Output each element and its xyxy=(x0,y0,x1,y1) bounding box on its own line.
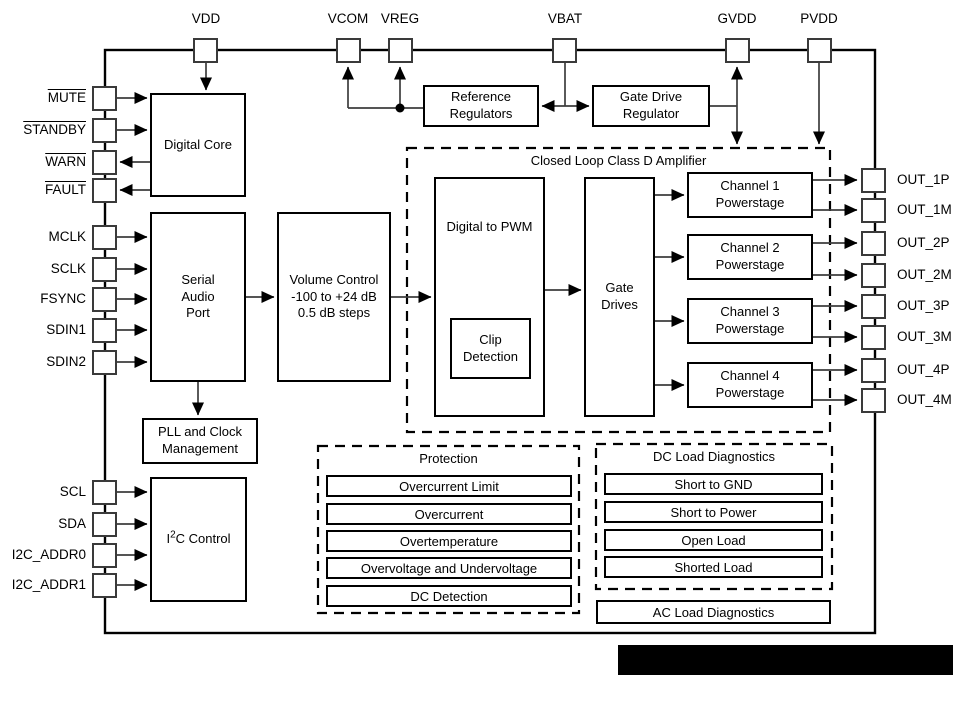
dc-load-item-shorted-load: Shorted Load xyxy=(604,556,823,578)
protection-item-overtemperature: Overtemperature xyxy=(326,530,572,552)
block-channel4-powerstage: Channel 4 Powerstage xyxy=(687,362,813,408)
block-digital-to-pwm: Digital to PWM xyxy=(434,177,545,417)
pin-i2c-addr0 xyxy=(92,543,117,568)
refreg-line1: Reference xyxy=(451,89,511,106)
pin-label-fsync: FSYNC xyxy=(0,291,86,307)
pin-sdin2 xyxy=(92,350,117,375)
refreg-line2: Regulators xyxy=(450,106,513,123)
block-gate-drives: Gate Drives xyxy=(584,177,655,417)
pin-label-out-2m: OUT_2M xyxy=(897,267,952,283)
sap-line3: Port xyxy=(186,305,210,322)
pin-out-3m xyxy=(861,325,886,350)
sap-line2: Audio xyxy=(181,289,214,306)
pin-gvdd xyxy=(725,38,750,63)
pll-line1: PLL and Clock xyxy=(158,424,242,441)
block-digital-core: Digital Core xyxy=(150,93,246,197)
volume-line3: 0.5 dB steps xyxy=(298,305,370,322)
ch3-line1: Channel 3 xyxy=(720,304,779,321)
pin-label-out-4m: OUT_4M xyxy=(897,392,952,408)
pin-label-scl: SCL xyxy=(0,484,86,500)
block-channel1-powerstage: Channel 1 Powerstage xyxy=(687,172,813,218)
i2c-control-label: I2C Control xyxy=(166,531,230,548)
pin-mclk xyxy=(92,225,117,250)
protection-item-overcurrent: Overcurrent xyxy=(326,503,572,525)
pin-pvdd xyxy=(807,38,832,63)
block-volume-control: Volume Control -100 to +24 dB 0.5 dB ste… xyxy=(277,212,391,382)
pin-vcom xyxy=(336,38,361,63)
pin-label-out-3m: OUT_3M xyxy=(897,329,952,345)
block-gate-drive-regulator: Gate Drive Regulator xyxy=(592,85,710,127)
ch4-line2: Powerstage xyxy=(716,385,785,402)
pin-label-out-1m: OUT_1M xyxy=(897,202,952,218)
pin-out-4m xyxy=(861,388,886,413)
protection-group-title: Protection xyxy=(318,451,579,466)
dc-load-group-title: DC Load Diagnostics xyxy=(596,449,832,464)
dc-load-item-open-load: Open Load xyxy=(604,529,823,551)
block-i2c-control: I2C Control xyxy=(150,477,247,602)
closed-loop-group-title: Closed Loop Class D Amplifier xyxy=(407,153,830,168)
pin-i2c-addr1 xyxy=(92,573,117,598)
pin-out-3p xyxy=(861,294,886,319)
gate-drives-line1: Gate xyxy=(605,280,633,297)
dc-load-item-short-to-power: Short to Power xyxy=(604,501,823,523)
clip-line1: Clip xyxy=(479,332,501,349)
protection-item-dc-detection: DC Detection xyxy=(326,585,572,607)
pin-vreg xyxy=(388,38,413,63)
ch4-line1: Channel 4 xyxy=(720,368,779,385)
pin-out-1m xyxy=(861,198,886,223)
pin-label-out-2p: OUT_2P xyxy=(897,235,950,251)
pin-out-2p xyxy=(861,231,886,256)
volume-line2: -100 to +24 dB xyxy=(291,289,377,306)
block-diagram: VDD VCOM VREG VBAT GVDD PVDD MUTE STANDB… xyxy=(0,0,979,702)
pin-warn xyxy=(92,150,117,175)
pin-label-mute: MUTE xyxy=(0,90,86,106)
pin-fault xyxy=(92,178,117,203)
pin-out-4p xyxy=(861,358,886,383)
pin-label-i2c-addr0: I2C_ADDR0 xyxy=(0,547,86,563)
pin-out-1p xyxy=(861,168,886,193)
ch3-line2: Powerstage xyxy=(716,321,785,338)
pll-line2: Management xyxy=(162,441,238,458)
block-reference-regulators: Reference Regulators xyxy=(423,85,539,127)
pin-label-pvdd: PVDD xyxy=(779,11,859,27)
clip-line2: Detection xyxy=(463,349,518,366)
pin-mute xyxy=(92,86,117,111)
ch2-line1: Channel 2 xyxy=(720,240,779,257)
gdr-line1: Gate Drive xyxy=(620,89,682,106)
block-channel3-powerstage: Channel 3 Powerstage xyxy=(687,298,813,344)
volume-line1: Volume Control xyxy=(290,272,379,289)
ch1-line2: Powerstage xyxy=(716,195,785,212)
junction-dot xyxy=(396,104,405,113)
pin-label-out-4p: OUT_4P xyxy=(897,362,950,378)
block-clip-detection: Clip Detection xyxy=(450,318,531,379)
pin-vbat xyxy=(552,38,577,63)
ch2-line2: Powerstage xyxy=(716,257,785,274)
block-pll-clock-management: PLL and Clock Management xyxy=(142,418,258,464)
pin-sda xyxy=(92,512,117,537)
dc-load-item-short-to-gnd: Short to GND xyxy=(604,473,823,495)
pin-label-i2c-addr1: I2C_ADDR1 xyxy=(0,577,86,593)
ac-load-diagnostics: AC Load Diagnostics xyxy=(596,600,831,624)
pin-label-warn: WARN xyxy=(0,154,86,170)
block-channel2-powerstage: Channel 2 Powerstage xyxy=(687,234,813,280)
gate-drives-line2: Drives xyxy=(601,297,638,314)
ch1-line1: Channel 1 xyxy=(720,178,779,195)
block-digital-core-label: Digital Core xyxy=(164,137,232,154)
pin-standby xyxy=(92,118,117,143)
sap-line1: Serial xyxy=(181,272,214,289)
pin-label-sda: SDA xyxy=(0,516,86,532)
pin-fsync xyxy=(92,287,117,312)
pin-label-gvdd: GVDD xyxy=(697,11,777,27)
pin-out-2m xyxy=(861,263,886,288)
pin-label-standby: STANDBY xyxy=(0,122,86,138)
pin-vdd xyxy=(193,38,218,63)
pin-label-vreg: VREG xyxy=(360,11,440,27)
i2c-post: C Control xyxy=(176,531,231,546)
pin-scl xyxy=(92,480,117,505)
redacted-label-bar xyxy=(618,645,953,675)
gdr-line2: Regulator xyxy=(623,106,679,123)
pin-label-vdd: VDD xyxy=(166,11,246,27)
pin-label-sdin1: SDIN1 xyxy=(0,322,86,338)
pin-label-sdin2: SDIN2 xyxy=(0,354,86,370)
pin-label-out-3p: OUT_3P xyxy=(897,298,950,314)
protection-item-overcurrent-limit: Overcurrent Limit xyxy=(326,475,572,497)
digital-to-pwm-label: Digital to PWM xyxy=(447,219,533,236)
pin-label-out-1p: OUT_1P xyxy=(897,172,950,188)
block-serial-audio-port: Serial Audio Port xyxy=(150,212,246,382)
pin-label-fault: FAULT xyxy=(0,182,86,198)
pin-label-sclk: SCLK xyxy=(0,261,86,277)
pin-sclk xyxy=(92,257,117,282)
pin-label-vbat: VBAT xyxy=(525,11,605,27)
protection-item-over-under-voltage: Overvoltage and Undervoltage xyxy=(326,557,572,579)
pin-sdin1 xyxy=(92,318,117,343)
pin-label-mclk: MCLK xyxy=(0,229,86,245)
